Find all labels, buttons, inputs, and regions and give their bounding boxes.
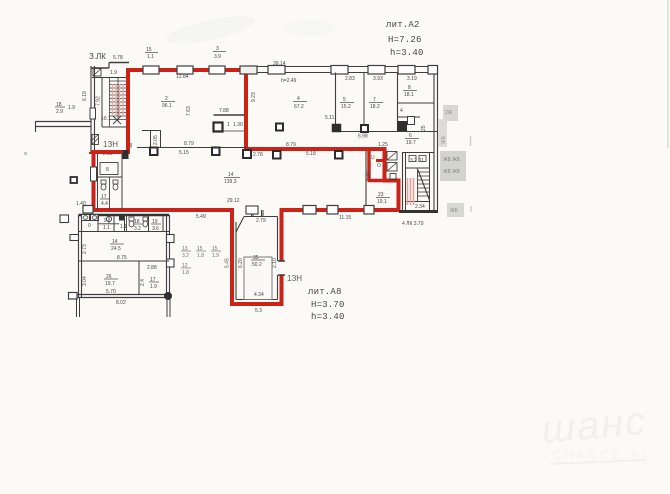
svg-text:3.2: 3.2 [134,226,141,232]
svg-text:1.30: 1.30 [233,122,243,128]
svg-text:5.45: 5.45 [225,258,231,268]
svg-text:U: U [371,155,375,161]
svg-text:ЖБ ЖБ: ЖБ ЖБ [443,157,461,163]
svg-text:3.93: 3.93 [373,76,383,82]
svg-text:2.34: 2.34 [415,204,425,210]
svg-text:2Ж: 2Ж [445,110,453,116]
svg-text:15.2: 15.2 [341,104,351,110]
svg-text:4: 4 [297,96,300,102]
svg-text:9: 9 [104,218,107,224]
svg-text:23: 23 [378,192,384,198]
svg-text:Н=3.70: Н=3.70 [311,300,345,310]
svg-text:8.75: 8.75 [117,255,127,261]
svg-text:8.02: 8.02 [116,300,126,306]
svg-text:139.3: 139.3 [224,179,237,185]
svg-text:5.15: 5.15 [179,150,189,156]
svg-text:5: 5 [343,97,346,103]
svg-text:5.18: 5.18 [306,151,316,157]
svg-text:18.2: 18.2 [370,104,380,110]
svg-text:лит.А8: лит.А8 [308,287,342,297]
svg-text:6.20: 6.20 [238,258,244,268]
svg-text:7.92: 7.92 [96,96,102,106]
svg-text:3.2: 3.2 [182,253,189,259]
svg-text:1: 1 [227,122,230,128]
svg-text:24.5: 24.5 [111,246,121,252]
svg-text:5.70: 5.70 [106,289,116,295]
svg-text:шанс: шанс [540,399,649,452]
svg-text:5.78: 5.78 [113,55,123,61]
svg-text:лит.А2: лит.А2 [386,20,420,30]
svg-text:h=3.40: h=3.40 [390,48,424,58]
svg-text:1.9: 1.9 [150,284,157,290]
svg-text:1.8: 1.8 [182,270,189,276]
svg-text:О: О [377,163,381,169]
svg-text:67.2: 67.2 [294,104,304,110]
svg-text:4: 4 [400,108,403,114]
svg-text:7.63: 7.63 [186,106,192,116]
svg-text:8.79: 8.79 [286,142,296,148]
svg-text:h=3.40: h=3.40 [311,312,345,322]
svg-text:1.1: 1.1 [147,54,154,60]
svg-text:4.4: 4.4 [101,201,108,207]
svg-text:2.83: 2.83 [345,76,355,82]
svg-text:2.05: 2.05 [153,135,159,145]
svg-text:0: 0 [88,223,91,229]
svg-text:12.84: 12.84 [176,74,189,80]
svg-text:11.15: 11.15 [339,215,351,221]
svg-text:Н=7.26: Н=7.26 [388,35,422,45]
svg-text:25: 25 [421,125,427,131]
svg-text:9.23: 9.23 [251,92,257,102]
svg-text:ЖБ ЖБ: ЖБ ЖБ [443,169,461,175]
svg-text:5.11: 5.11 [325,115,335,121]
svg-text:1.9: 1.9 [68,105,75,111]
svg-text:2: 2 [165,96,168,102]
svg-text:4.34: 4.34 [254,292,264,298]
svg-text:29.12: 29.12 [227,198,240,204]
svg-text:14: 14 [228,172,234,178]
svg-text:1.9: 1.9 [212,253,219,259]
svg-text:8.79: 8.79 [184,141,194,147]
svg-text:18.1: 18.1 [404,92,414,98]
svg-text:5.3: 5.3 [255,308,262,314]
svg-text:2.73: 2.73 [82,244,88,254]
svg-text:19.1: 19.1 [377,199,387,205]
svg-text:3: 3 [216,46,219,52]
svg-text:h=2.49: h=2.49 [281,78,297,84]
svg-text:1.1: 1.1 [103,225,110,231]
svg-text:7.88: 7.88 [219,108,229,114]
svg-text:1.9: 1.9 [110,70,117,76]
svg-text:З.ЛК: З.ЛК [89,52,106,61]
svg-text:10.1: 10.1 [101,116,111,122]
svg-text:2.88: 2.88 [147,265,157,271]
svg-text:7: 7 [373,97,376,103]
svg-text:96.1: 96.1 [162,103,172,109]
svg-text:5.49: 5.49 [196,214,206,220]
svg-text:19.7: 19.7 [406,140,416,146]
svg-text:4 ЛК 3.79: 4 ЛК 3.79 [402,221,424,227]
svg-text:1ЗН: 1ЗН [287,274,302,283]
svg-text:ЖБ: ЖБ [450,208,459,214]
svg-text:3.9: 3.9 [214,54,221,60]
svg-text:1.25: 1.25 [378,142,388,148]
svg-text:50.2: 50.2 [252,262,262,268]
svg-text:3.6: 3.6 [152,226,159,232]
svg-text:15: 15 [146,47,152,53]
svg-text:2.9: 2.9 [56,109,63,115]
svg-text:6.19: 6.19 [82,91,88,101]
svg-text:6.98: 6.98 [358,134,368,140]
svg-text:ЖБ: ЖБ [441,135,447,144]
svg-text:1.1: 1.1 [120,224,127,230]
svg-text:2.4: 2.4 [140,279,146,286]
svg-text:2.79: 2.79 [256,218,266,224]
svg-text:8: 8 [106,167,109,173]
svg-text:1ЗН: 1ЗН [103,140,118,149]
svg-text:8: 8 [408,85,411,91]
svg-text:3 2.01: 3 2.01 [410,158,424,164]
svg-text:2.78: 2.78 [253,152,263,158]
svg-text:3.19: 3.19 [407,76,417,82]
svg-text:6: 6 [409,133,412,139]
svg-text:3.04: 3.04 [82,276,88,286]
svg-text:19.7: 19.7 [105,281,115,287]
svg-text:2.30: 2.30 [367,171,373,181]
svg-text:1.8: 1.8 [197,253,204,259]
